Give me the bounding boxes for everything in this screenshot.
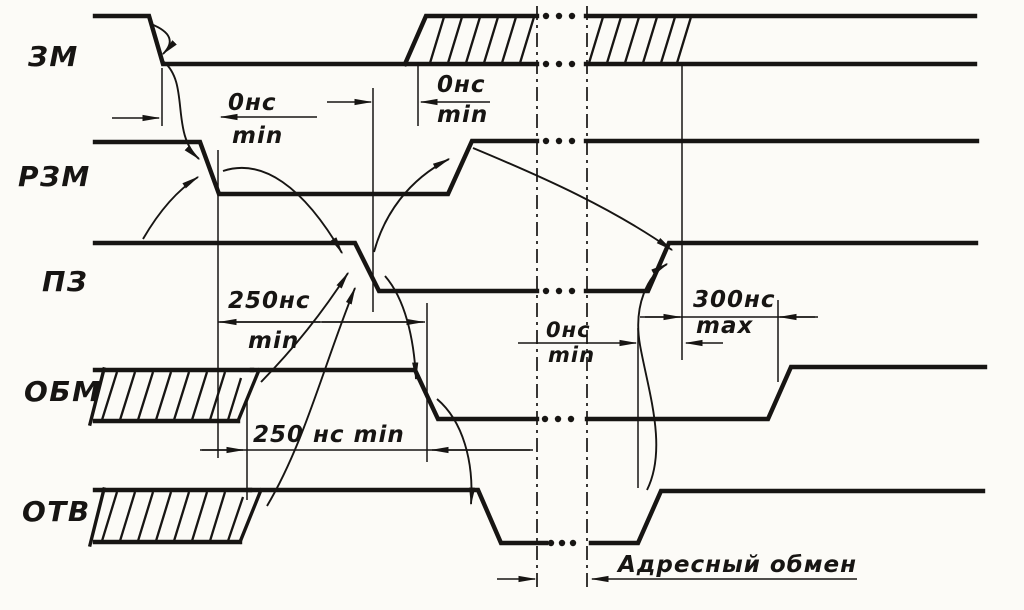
arrow-rzm-fall-to-pz-fall — [223, 168, 342, 253]
signal-label-zm: ЗМ — [27, 40, 79, 73]
arrow-otv-end-to-pz-fall — [267, 288, 355, 506]
arrow-pz-to-rzm-fall — [143, 177, 198, 239]
dimension-250ns-min-lower: 250 нс min — [200, 422, 533, 450]
signal-label-obm: ОБМ — [24, 375, 102, 408]
signal-otv: ОТВ — [22, 489, 983, 546]
zm-hatch — [430, 17, 691, 63]
arrow-otv-rise-to-pz-rise — [638, 264, 667, 490]
arrow-zm-fall-to-rzm-fall — [164, 62, 199, 159]
otv-band-left-edge — [90, 489, 104, 545]
dim4-value: 0нс — [546, 318, 591, 342]
dimension-300ns-max: 300нс max — [640, 287, 818, 339]
pz-waveform — [95, 243, 537, 291]
zm-gap-dots — [543, 13, 575, 67]
signal-label-otv: ОТВ — [22, 495, 91, 528]
signal-label-pz: ПЗ — [42, 265, 88, 298]
otv-waveform-after-gap — [591, 491, 983, 543]
timing-diagram-canvas: ЗМ РЗМ ПЗ — [0, 0, 1024, 610]
dim7-label: Адресный обмен — [616, 552, 857, 578]
dim2-qualifier: min — [437, 102, 488, 128]
zm-waveform-high — [405, 16, 537, 64]
otv-waveform — [250, 490, 546, 543]
signal-rzm: РЗМ — [18, 138, 977, 194]
rzm-waveform — [95, 141, 537, 194]
dim1-qualifier: min — [232, 123, 283, 149]
arrow-pz-fall-to-rzm-rise — [374, 159, 449, 252]
dim3-value: 250нс — [228, 288, 311, 314]
dim5-value: 300нс — [693, 287, 776, 313]
otv-hatch — [102, 492, 243, 541]
signal-pz: ПЗ — [42, 243, 976, 298]
break-lines — [537, 6, 587, 592]
causality-arrows — [143, 24, 672, 506]
zm-waveform — [95, 16, 537, 64]
pz-gap-dots — [543, 288, 575, 294]
dim2-value: 0нс — [437, 72, 486, 98]
rzm-gap-dots — [543, 138, 575, 144]
obm-hatch — [102, 372, 241, 420]
obm-crossover-edge — [238, 370, 259, 421]
dimension-0ns-min-2: 0нс min — [327, 72, 490, 128]
signal-obm: ОБМ — [24, 367, 985, 424]
signal-label-rzm: РЗМ — [18, 160, 91, 193]
dim6-value: 250 нс min — [253, 422, 405, 448]
dimension-250ns-min-upper: 250нс min — [218, 288, 425, 354]
dimension-address-exchange: Адресный обмен — [497, 552, 857, 579]
arrow-rzm-rise-to-pz-rise — [473, 148, 672, 250]
dim1-value: 0нс — [228, 90, 277, 116]
obm-waveform — [252, 370, 537, 419]
otv-gap-dots — [548, 540, 576, 546]
dim5-qualifier: max — [696, 313, 753, 339]
pz-waveform-after-gap — [586, 243, 976, 291]
dimension-0ns-min-3: 0нс min — [518, 318, 723, 367]
obm-gap-dots — [542, 416, 574, 422]
dim4-qualifier: min — [548, 343, 595, 367]
